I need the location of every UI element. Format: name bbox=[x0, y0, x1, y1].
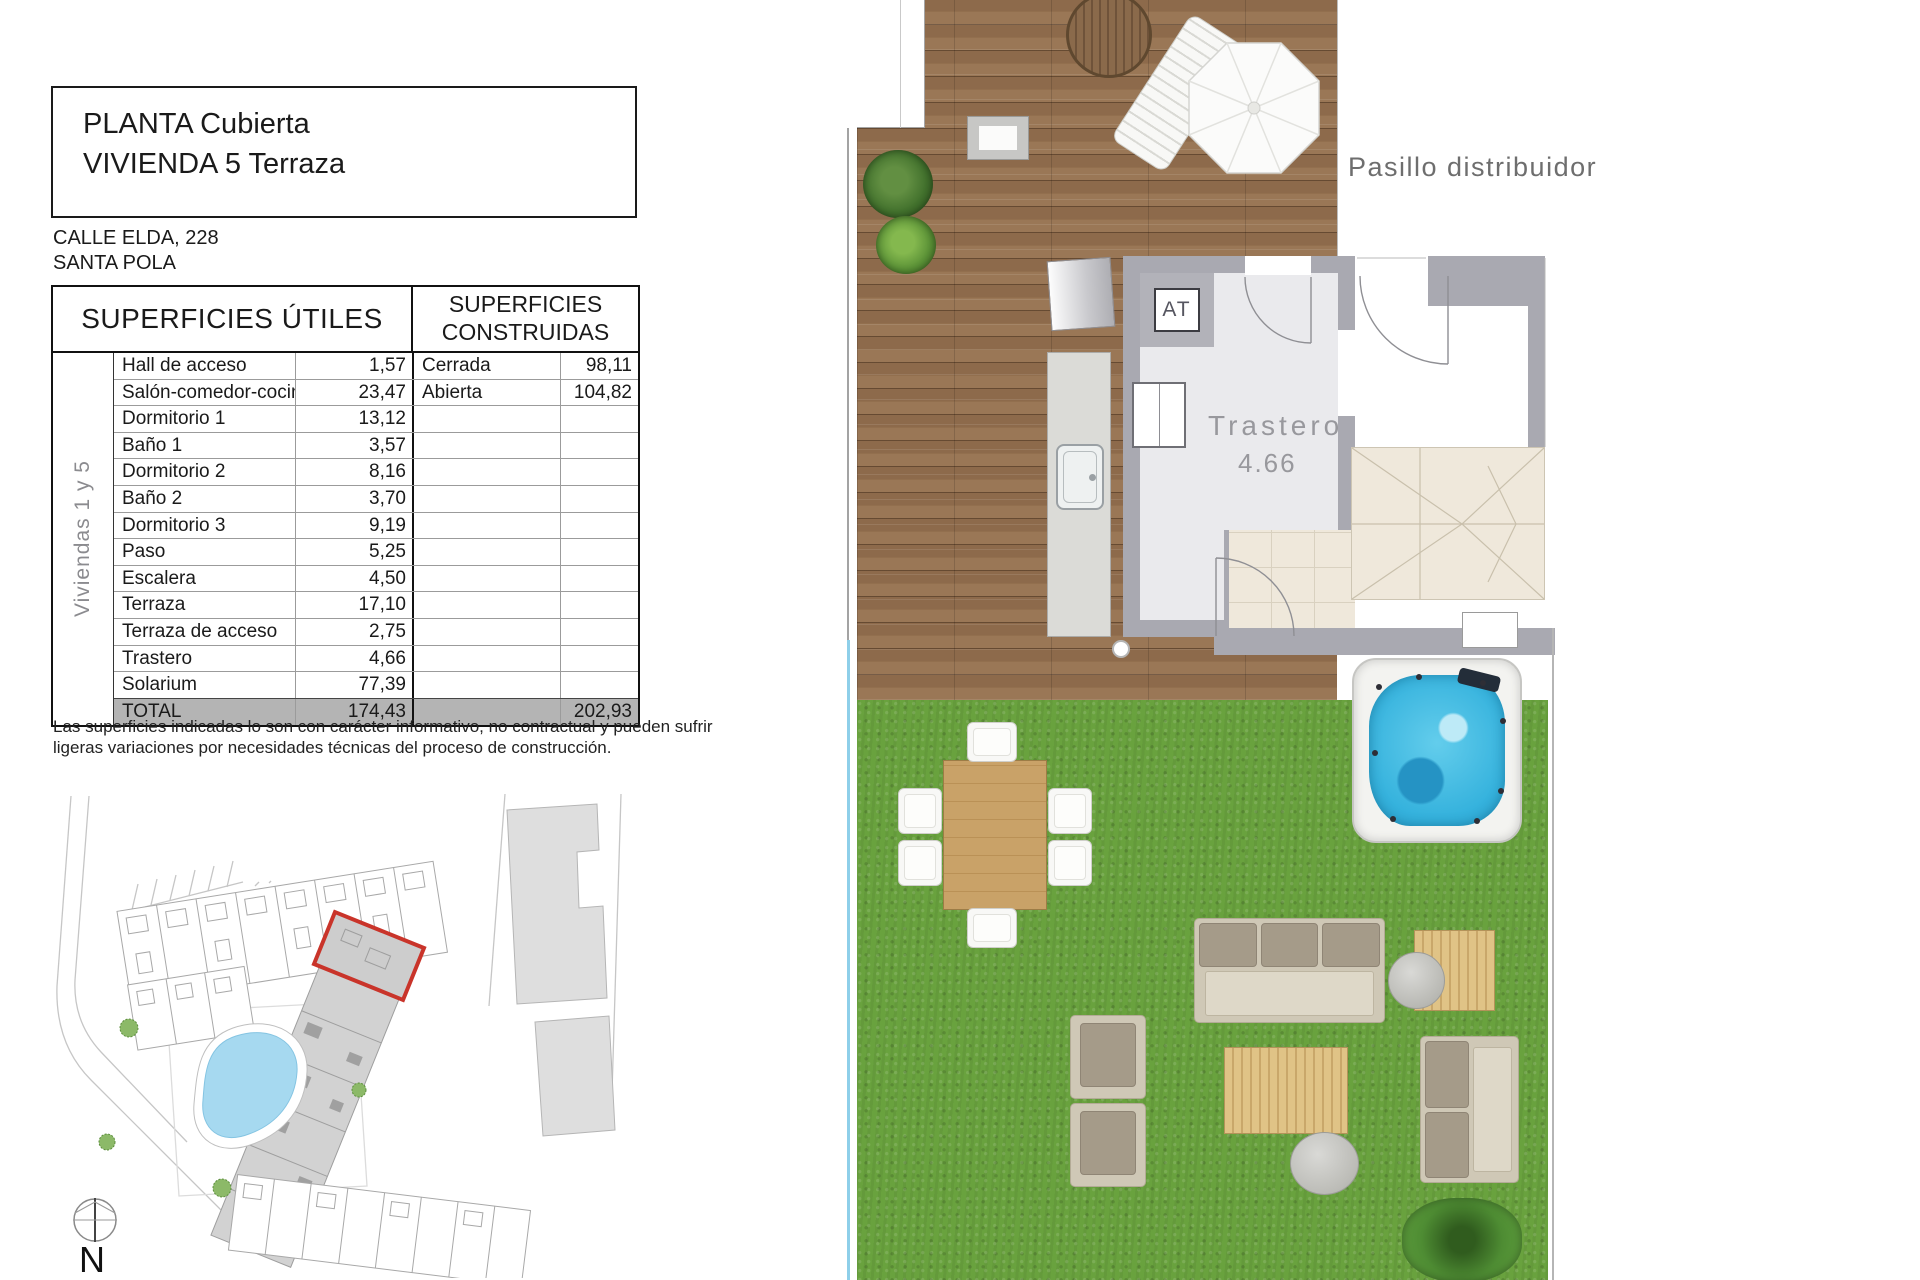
cell-cval bbox=[560, 619, 638, 645]
site-location-plan: N bbox=[37, 790, 637, 1278]
table-row: Paso5,25 bbox=[114, 538, 638, 565]
at-label: AT bbox=[1162, 298, 1191, 322]
cell-cval bbox=[560, 566, 638, 592]
cell-val: 77,39 bbox=[295, 672, 412, 698]
cell-cval bbox=[560, 433, 638, 459]
utility-niche bbox=[1462, 612, 1518, 648]
plan-sheet: PLANTA Cubierta VIVIENDA 5 Terraza CALLE… bbox=[0, 0, 1920, 1280]
cell-val: 3,70 bbox=[295, 486, 412, 512]
neighbor-building-1 bbox=[507, 804, 607, 1004]
table-row: Hall de acceso1,57Cerrada98,11 bbox=[114, 353, 638, 379]
boundary-line bbox=[847, 128, 849, 640]
table-row: Baño 13,57 bbox=[114, 432, 638, 459]
neighbor-notch bbox=[857, 0, 925, 128]
cell-val: 3,57 bbox=[295, 433, 412, 459]
address-city: SANTA POLA bbox=[53, 251, 219, 276]
cell-cname: Abierta bbox=[412, 380, 560, 406]
cell-name: Baño 1 bbox=[114, 433, 295, 459]
cell-cname bbox=[412, 406, 560, 432]
jacuzzi-water bbox=[1369, 675, 1505, 826]
table-row: Dormitorio 113,12 bbox=[114, 405, 638, 432]
window bbox=[1132, 382, 1186, 448]
cell-val: 17,10 bbox=[295, 592, 412, 618]
armchair bbox=[1070, 1103, 1146, 1187]
header-superficies-construidas: SUPERFICIES CONSTRUIDAS bbox=[411, 287, 638, 351]
title-box: PLANTA Cubierta VIVIENDA 5 Terraza bbox=[51, 86, 637, 218]
table-row: Terraza17,10 bbox=[114, 591, 638, 618]
cell-name: Escalera bbox=[114, 566, 295, 592]
coffee-table bbox=[1224, 1047, 1348, 1134]
areas-rows: Hall de acceso1,57Cerrada98,11Salón-come… bbox=[114, 353, 638, 725]
plan-title-line1: PLANTA Cubierta bbox=[83, 104, 635, 144]
parasol-icon bbox=[1180, 34, 1328, 182]
cell-name: Dormitorio 2 bbox=[114, 459, 295, 485]
cell-name: Trastero bbox=[114, 646, 295, 672]
table-row: Solarium77,39 bbox=[114, 671, 638, 698]
cell-val: 23,47 bbox=[295, 380, 412, 406]
areas-table-header: SUPERFICIES ÚTILES SUPERFICIES CONSTRUID… bbox=[53, 287, 638, 353]
table-row: Trastero4,66 bbox=[114, 645, 638, 672]
cell-cval bbox=[560, 539, 638, 565]
sofa bbox=[1194, 918, 1385, 1023]
round-side-table bbox=[1388, 952, 1445, 1009]
row-axis-label: Viviendas 1 y 5 bbox=[53, 353, 114, 725]
cell-cname bbox=[412, 459, 560, 485]
jacuzzi-jets bbox=[1376, 684, 1382, 690]
cell-cval bbox=[560, 459, 638, 485]
cell-cval bbox=[560, 406, 638, 432]
cell-cval bbox=[560, 592, 638, 618]
cell-name: Salón-comedor-cocina bbox=[114, 380, 295, 406]
boundary-line bbox=[1552, 628, 1554, 1280]
cell-val: 8,16 bbox=[295, 459, 412, 485]
cell-cname: Cerrada bbox=[412, 353, 560, 379]
sink-icon bbox=[1056, 444, 1104, 510]
cell-name: Baño 2 bbox=[114, 486, 295, 512]
table-row: Dormitorio 28,16 bbox=[114, 458, 638, 485]
cell-name: Solarium bbox=[114, 672, 295, 698]
cell-name: Hall de acceso bbox=[114, 353, 295, 379]
areas-table-body: Viviendas 1 y 5 Hall de acceso1,57Cerrad… bbox=[53, 353, 638, 725]
corridor-wall bbox=[1428, 256, 1545, 306]
potted-plant-icon bbox=[863, 150, 933, 218]
cell-cname bbox=[412, 433, 560, 459]
table-row: Dormitorio 39,19 bbox=[114, 512, 638, 539]
table-row: Terraza de acceso2,75 bbox=[114, 618, 638, 645]
dining-chair bbox=[967, 722, 1017, 762]
boundary-line bbox=[900, 0, 901, 128]
jacuzzi bbox=[1352, 658, 1522, 843]
round-stone-table bbox=[1290, 1132, 1359, 1195]
areas-table: SUPERFICIES ÚTILES SUPERFICIES CONSTRUID… bbox=[51, 285, 640, 727]
cell-cname bbox=[412, 672, 560, 698]
cell-cval: 98,11 bbox=[560, 353, 638, 379]
cell-name: Terraza bbox=[114, 592, 295, 618]
cell-name: Terraza de acceso bbox=[114, 619, 295, 645]
dining-chair bbox=[1048, 840, 1092, 886]
address-street: CALLE ELDA, 228 bbox=[53, 226, 219, 251]
dining-chair bbox=[898, 788, 942, 834]
north-arrow-icon bbox=[73, 1198, 117, 1242]
disclaimer-line1: Las superficies indicadas lo son con car… bbox=[53, 716, 713, 737]
deck-edge-line bbox=[1337, 0, 1338, 258]
cell-cname bbox=[412, 486, 560, 512]
stairs bbox=[1351, 447, 1545, 600]
cell-name: Dormitorio 1 bbox=[114, 406, 295, 432]
plot-edge-line bbox=[847, 640, 850, 1280]
cell-val: 4,66 bbox=[295, 646, 412, 672]
ac-unit bbox=[1047, 257, 1116, 331]
north-label: N bbox=[79, 1239, 105, 1278]
storage-room-area: 4.66 bbox=[1238, 448, 1297, 479]
cell-val: 13,12 bbox=[295, 406, 412, 432]
table-row: Salón-comedor-cocina23,47Abierta104,82 bbox=[114, 379, 638, 406]
corridor-wall bbox=[1528, 306, 1545, 447]
potted-plant-icon bbox=[876, 216, 936, 274]
cell-cval bbox=[560, 513, 638, 539]
fern-plant-icon bbox=[1402, 1198, 1522, 1280]
dining-table bbox=[943, 760, 1047, 910]
armchair bbox=[1070, 1015, 1146, 1099]
pendant-lamp-icon bbox=[1112, 640, 1130, 658]
cell-val: 9,19 bbox=[295, 513, 412, 539]
cell-val: 5,25 bbox=[295, 539, 412, 565]
table-row: Escalera4,50 bbox=[114, 565, 638, 592]
cell-name: Dormitorio 3 bbox=[114, 513, 295, 539]
cell-cname bbox=[412, 619, 560, 645]
cell-val: 1,57 bbox=[295, 353, 412, 379]
cell-val: 2,75 bbox=[295, 619, 412, 645]
disclaimer: Las superficies indicadas lo son con car… bbox=[53, 716, 713, 758]
dining-chair bbox=[1048, 788, 1092, 834]
cell-cname bbox=[412, 539, 560, 565]
cell-cname bbox=[412, 646, 560, 672]
cell-cval bbox=[560, 486, 638, 512]
cell-cname bbox=[412, 513, 560, 539]
cell-cval bbox=[560, 672, 638, 698]
dining-chair bbox=[898, 840, 942, 886]
cell-cval bbox=[560, 646, 638, 672]
dining-chair bbox=[967, 908, 1017, 948]
neighbor-building-2 bbox=[535, 1016, 615, 1136]
cell-val: 4,50 bbox=[295, 566, 412, 592]
door-opening bbox=[1338, 330, 1355, 416]
address-block: CALLE ELDA, 228 SANTA POLA bbox=[53, 226, 219, 276]
cell-name: Paso bbox=[114, 539, 295, 565]
header-superficies-utiles: SUPERFICIES ÚTILES bbox=[53, 287, 411, 351]
cell-cname bbox=[412, 592, 560, 618]
disclaimer-line2: ligeras variaciones por necesidades técn… bbox=[53, 737, 713, 758]
sofa bbox=[1420, 1036, 1519, 1183]
cell-cname bbox=[412, 566, 560, 592]
door-opening bbox=[1245, 256, 1311, 275]
plan-title-line2: VIVIENDA 5 Terraza bbox=[83, 144, 635, 184]
table-row: Baño 23,70 bbox=[114, 485, 638, 512]
doormat bbox=[967, 116, 1029, 160]
townhouse-row-lower bbox=[228, 1175, 530, 1278]
tiled-landing bbox=[1224, 530, 1355, 637]
corridor-label: Pasillo distribuidor bbox=[1348, 152, 1597, 183]
storage-room-label: Trastero bbox=[1208, 410, 1343, 442]
at-box: AT bbox=[1154, 288, 1200, 332]
cell-cval: 104,82 bbox=[560, 380, 638, 406]
